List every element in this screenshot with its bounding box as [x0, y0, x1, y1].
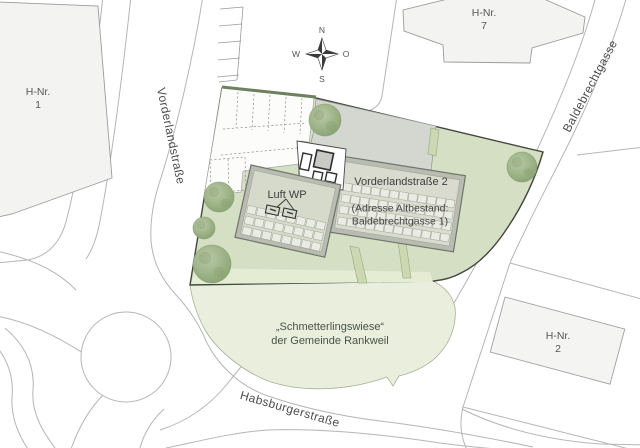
roof-panel — [380, 189, 390, 198]
roof-panel — [291, 237, 301, 246]
roof-panel — [384, 224, 394, 233]
roof-panel — [284, 225, 294, 234]
tree-icon — [507, 152, 537, 182]
roof-panel — [352, 184, 362, 193]
roof-panel — [356, 220, 366, 229]
roof-panel — [339, 205, 349, 214]
building-hnr2 — [490, 297, 625, 384]
roof-panel — [397, 203, 407, 212]
roof-panel — [395, 214, 405, 223]
roof-panel — [389, 190, 399, 199]
roof-panel — [244, 216, 254, 225]
roof-panel — [386, 213, 396, 222]
roof-panel — [403, 227, 413, 236]
roof-panel — [412, 229, 422, 238]
roof-panel — [414, 217, 424, 226]
roof-panel — [431, 232, 441, 241]
roof-panel — [303, 229, 313, 238]
roof-panel — [376, 211, 386, 220]
roof-panel — [316, 221, 326, 230]
roof-panel — [274, 222, 284, 231]
roof-panel — [313, 231, 323, 240]
roof-panel — [399, 192, 409, 201]
roof-panel — [311, 242, 321, 251]
north-parking-strip — [217, 7, 243, 82]
roof-panel — [378, 200, 388, 209]
roof-panel — [358, 208, 368, 217]
roof-panel — [296, 216, 306, 225]
roof-panel — [348, 207, 358, 216]
roof-panel — [423, 219, 433, 228]
site-plan: H-Nr. 1 H-Nr. 7 H-Nr. 2 Vorderlandstraße… — [0, 0, 640, 448]
roof-panel — [393, 226, 403, 235]
building-hnr7 — [403, 0, 585, 63]
tree-icon — [204, 182, 234, 212]
roof-panel — [252, 229, 262, 238]
roof-panel — [375, 223, 385, 232]
roof-panel — [347, 218, 357, 227]
roof-panel — [247, 205, 257, 214]
compass-rose-icon — [306, 38, 338, 70]
roof-panel — [367, 210, 377, 219]
roof-panel — [254, 218, 264, 227]
tree-icon — [309, 104, 341, 136]
roof-panel — [427, 196, 437, 205]
roof-panel — [293, 227, 303, 236]
roof-panel — [264, 220, 274, 229]
roundabout — [81, 312, 171, 402]
roof-panel — [361, 186, 371, 195]
tree-icon — [193, 245, 231, 283]
roof-panel — [242, 226, 252, 235]
roof-panel — [404, 216, 414, 225]
roof-panel — [350, 196, 360, 205]
roof-panel — [408, 193, 418, 202]
roof-panel — [445, 199, 455, 208]
roof-panel — [406, 204, 416, 213]
roof-panel — [262, 231, 272, 240]
roof-panel — [360, 197, 370, 206]
tree-icon — [193, 217, 215, 239]
roof-panel — [425, 207, 435, 216]
site-plan-drawing — [0, 0, 640, 448]
roof-panel — [306, 218, 316, 227]
roof-panel — [369, 199, 379, 208]
roof-panel — [371, 187, 381, 196]
roof-panel — [417, 195, 427, 204]
roof-panel — [271, 233, 281, 242]
building-hnr1 — [0, 2, 112, 217]
roof-panel — [365, 221, 375, 230]
roof-panel — [301, 240, 311, 249]
roof-panel — [281, 235, 291, 244]
roof-panel — [343, 183, 353, 192]
roof-panel — [432, 220, 442, 229]
roof-panel — [388, 202, 398, 211]
roof-panel — [421, 230, 431, 239]
roof-panel — [416, 206, 426, 215]
roof-panel — [442, 222, 452, 231]
roof-panel — [440, 233, 450, 242]
roof-panel — [436, 198, 446, 207]
roof-panel — [341, 194, 351, 203]
roof-panel — [444, 210, 454, 219]
roof-panel — [337, 217, 347, 226]
roof-panel — [434, 209, 444, 218]
